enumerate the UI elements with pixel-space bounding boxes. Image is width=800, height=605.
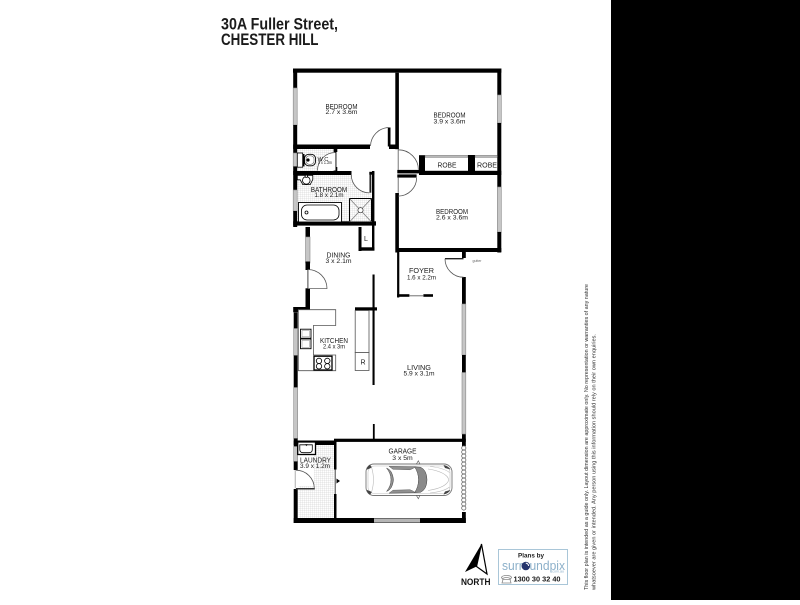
svg-text:3.9 x 1.2m: 3.9 x 1.2m <box>300 463 330 470</box>
svg-text:2.6 x 3.6m: 2.6 x 3.6m <box>436 214 468 221</box>
svg-text:This floor plan is intended as: This floor plan is intended as a guide o… <box>584 284 590 590</box>
svg-text:1300 30 32 40: 1300 30 32 40 <box>514 575 561 584</box>
svg-text:2.4 x 3m: 2.4 x 3m <box>323 343 345 350</box>
svg-text:3 x 5m: 3 x 5m <box>392 455 413 462</box>
svg-text:3.9 x 3.6m: 3.9 x 3.6m <box>434 118 466 125</box>
svg-text:1.8 x 2.1m: 1.8 x 2.1m <box>315 192 344 199</box>
svg-text:5.9 x 3.1m: 5.9 x 3.1m <box>404 371 435 378</box>
svg-text:CHESTER HILL: CHESTER HILL <box>221 31 319 49</box>
svg-text:ROBE: ROBE <box>477 163 497 170</box>
svg-text:.com.au: .com.au <box>551 570 564 574</box>
svg-text:R: R <box>360 359 365 366</box>
svg-text:1 x 1.3m: 1 x 1.3m <box>318 160 332 165</box>
svg-text:2.7 x 3.6m: 2.7 x 3.6m <box>326 109 358 116</box>
svg-text:1.6 x 2.2m: 1.6 x 2.2m <box>407 274 436 281</box>
svg-text:whatsoever are given or intend: whatsoever are given or intended. Any pe… <box>592 334 598 591</box>
svg-text:NORTH: NORTH <box>461 577 491 587</box>
svg-text:gutter: gutter <box>473 259 483 263</box>
svg-text:3 x 2.1m: 3 x 2.1m <box>326 258 352 265</box>
svg-text:ROBE: ROBE <box>438 163 457 170</box>
svg-text:L: L <box>364 236 368 243</box>
